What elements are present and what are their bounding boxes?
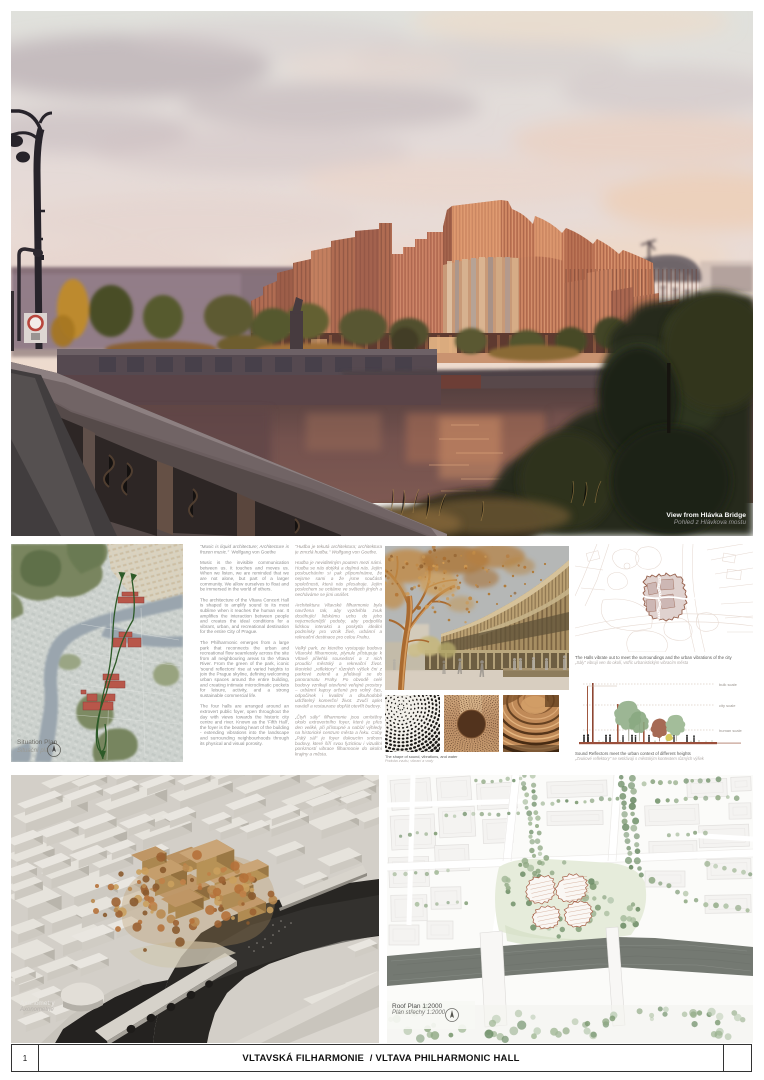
svg-text:city scale: city scale (719, 703, 736, 708)
svg-text:N: N (52, 740, 55, 745)
svg-text:human scale: human scale (719, 728, 742, 733)
svg-text:Situační plán: Situační plán (17, 748, 52, 754)
svg-text:bulk scale: bulk scale (719, 682, 738, 687)
